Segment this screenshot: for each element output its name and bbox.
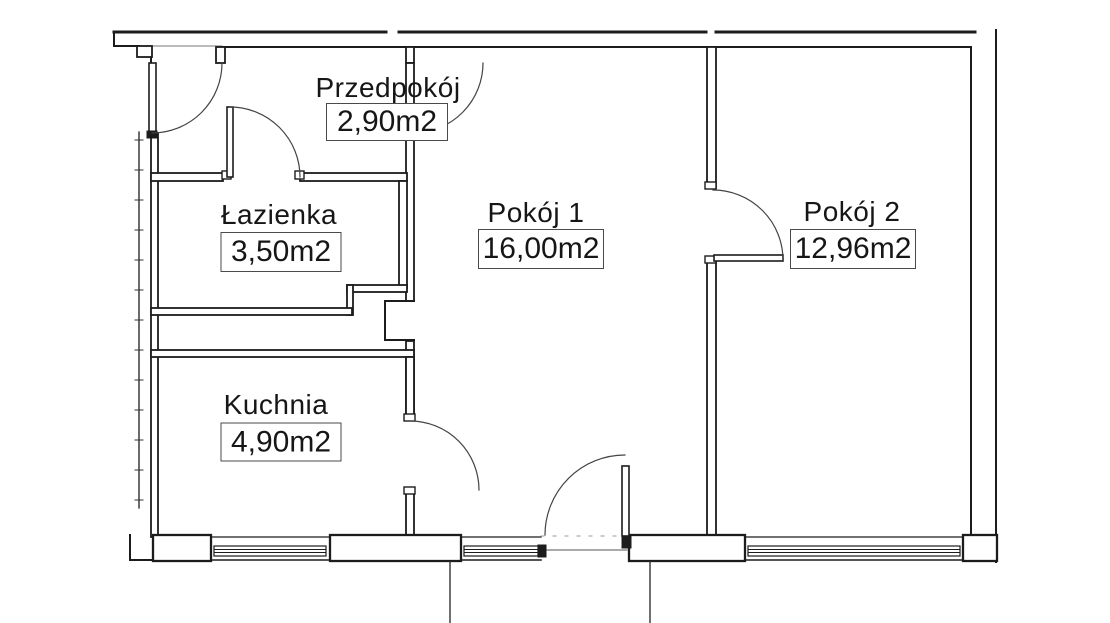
- room-area-pokoj1: 16,00m2: [478, 229, 604, 269]
- left-wall: [151, 133, 158, 537]
- balcony-door-leaf: [622, 466, 629, 536]
- room-name-pokoj2: Pokój 2: [804, 198, 901, 226]
- kitchen-top-wall: [151, 350, 414, 357]
- kitchen-window-glazing: [214, 546, 326, 556]
- p2-door-arc: [713, 190, 783, 260]
- bathroom-notch-wall-h: [347, 285, 407, 292]
- bottom-wall-block-mid-right: [629, 535, 745, 561]
- p2-window-glazing: [748, 546, 960, 556]
- entrance-door-cap: [147, 131, 157, 138]
- bathroom-door-leaf: [227, 107, 233, 177]
- balcony-door-cap-right: [622, 536, 631, 548]
- kitchen-door-jamb-bottom: [404, 487, 415, 494]
- kitchen-door-jamb-top: [404, 414, 415, 421]
- bathroom-bottom-wall: [151, 308, 352, 315]
- room-area-lazienka: 3,50m2: [221, 232, 342, 272]
- room-name-pokoj1: Pokój 1: [488, 199, 585, 227]
- bottom-wall-block-corner-right: [963, 535, 997, 561]
- entrance-door-arc: [152, 63, 222, 133]
- room-area-pokoj1-text: 16,00m2: [483, 234, 600, 264]
- room-area-pokoj2: 12,96m2: [790, 229, 916, 269]
- p2-door-jamb-top: [705, 182, 716, 189]
- kitchen-door-arc: [410, 421, 479, 490]
- room-area-lazienka-text: 3,50m2: [231, 237, 331, 267]
- duct-niche-outline: [385, 301, 414, 340]
- entrance-jamb-block: [216, 47, 225, 63]
- room-area-przedpokoj: 2,90m2: [326, 103, 448, 141]
- balcony-door-arc: [545, 455, 625, 535]
- floor-plan: Przedpokój 2,90m2 Łazienka 3,50m2 Pokój …: [0, 0, 1110, 623]
- p1-window-glazing: [464, 546, 538, 556]
- kitchen-right-wall-upper: [406, 357, 414, 418]
- room-area-przedpokoj-text: 2,90m2: [337, 107, 437, 137]
- hall-p1-wall-stub: [406, 47, 414, 63]
- hall-p1-wall-bottom: [406, 490, 414, 537]
- room-area-pokoj2-text: 12,96m2: [795, 234, 912, 264]
- bathroom-right-wall: [399, 181, 407, 288]
- room-area-kuchnia: 4,90m2: [221, 423, 342, 462]
- entrance-door-leaf: [149, 63, 156, 133]
- room-area-kuchnia-text: 4,90m2: [231, 427, 331, 457]
- p2-door-leaf: [714, 255, 783, 261]
- balcony-door-cap-left: [538, 545, 546, 557]
- bathroom-door-arc: [230, 107, 300, 177]
- bottom-wall-block-kitchen: [153, 535, 211, 561]
- room-name-przedpokoj: Przedpokój: [315, 74, 460, 102]
- bathroom-top-wall-left: [151, 173, 223, 181]
- p1-p2-wall-bottom: [707, 260, 716, 537]
- top-step-block: [137, 46, 152, 57]
- p1-p2-wall-top: [707, 47, 716, 188]
- room-name-lazienka: Łazienka: [221, 201, 337, 229]
- bottom-wall-block-mid-left: [330, 535, 461, 561]
- bathroom-top-wall-right: [300, 173, 407, 181]
- room-name-kuchnia: Kuchnia: [224, 391, 329, 419]
- floor-plan-drawing: [0, 0, 1110, 623]
